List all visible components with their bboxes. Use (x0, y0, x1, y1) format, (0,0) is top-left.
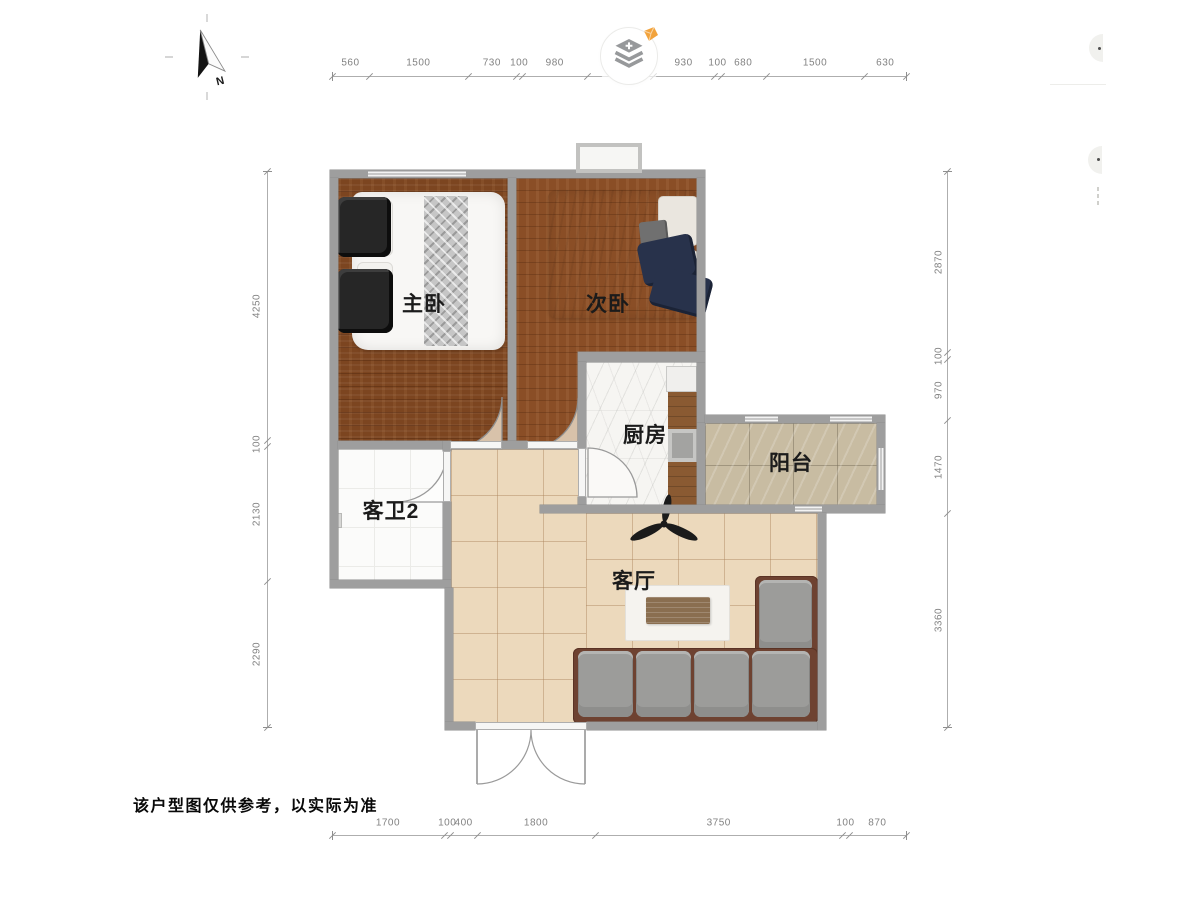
room-label-guest-bathroom: 客卫2 (363, 495, 420, 525)
window (745, 415, 778, 423)
dim-label: 3360 (934, 608, 945, 632)
dim-tick (332, 831, 333, 840)
wall (697, 178, 705, 423)
window (368, 170, 466, 178)
door-frame (450, 441, 502, 449)
dim-tick (943, 727, 952, 728)
dim-label: 100 (252, 435, 263, 453)
room-label-master-bedroom: 主卧 (402, 288, 446, 318)
room-label-kitchen: 厨房 (623, 419, 667, 449)
dim-label: 1700 (376, 818, 400, 829)
window (877, 448, 885, 490)
dim-label: 100 (836, 818, 854, 829)
edge-divider (1050, 84, 1106, 85)
dim-label: 3750 (707, 818, 731, 829)
wall (330, 580, 451, 588)
dim-label: 980 (546, 58, 564, 69)
dim-line (332, 835, 906, 836)
wall (540, 505, 885, 513)
dim-tick (906, 831, 907, 840)
wall (445, 588, 453, 730)
dimension-layer: 5601500730100980100093010068015006301700… (0, 0, 1200, 900)
dim-tick (332, 72, 333, 81)
dim-label: 4250 (252, 294, 263, 318)
wall (818, 513, 826, 730)
dim-label: 400 (455, 818, 473, 829)
dim-label: 2870 (934, 250, 945, 274)
dim-label: 100 (510, 58, 528, 69)
diamond-gem-icon (641, 26, 661, 46)
dim-label: 100 (934, 347, 945, 365)
wall (578, 352, 705, 362)
dim-label: 730 (483, 58, 501, 69)
wall (443, 502, 451, 588)
dim-line (267, 171, 268, 727)
window (830, 415, 872, 423)
wall (445, 722, 475, 730)
wall (502, 441, 527, 449)
door-frame (443, 451, 451, 502)
dim-label: 630 (876, 58, 894, 69)
dim-label: 2130 (252, 502, 263, 526)
wall (508, 178, 516, 441)
dim-tick (263, 171, 272, 172)
room-label-second-bedroom: 次卧 (586, 288, 630, 318)
dim-label: 1800 (524, 818, 548, 829)
flue-protrusion (576, 143, 642, 173)
wall (338, 441, 450, 449)
dim-label: 100 (708, 58, 726, 69)
wall (578, 362, 586, 448)
dim-label: 100 (438, 818, 456, 829)
door-frame (527, 441, 578, 449)
compass: N (157, 5, 257, 105)
dim-label: 1470 (934, 455, 945, 479)
dim-label: 1500 (406, 58, 430, 69)
dim-label: 970 (934, 381, 945, 399)
edge-text-mark (1097, 201, 1099, 205)
wall (587, 722, 826, 730)
balcony-slider-window (795, 505, 822, 513)
floorplan-canvas: 主卧 次卧 厨房 阳台 客卫2 客厅 该户型图仅供参考，以实际为准 560150… (0, 0, 1200, 900)
dim-line (947, 171, 948, 727)
wall (697, 423, 705, 513)
edge-button-dot-icon (1098, 47, 1101, 50)
wall (330, 178, 338, 588)
dim-label: 930 (674, 58, 692, 69)
dim-label: 870 (868, 818, 886, 829)
entry-door-frame (475, 722, 587, 730)
compass-north-label: N (215, 75, 226, 89)
door-frame (578, 448, 586, 497)
edge-text-mark (1097, 187, 1099, 191)
dim-label: 560 (341, 58, 359, 69)
dim-label: 2290 (252, 642, 263, 666)
dim-tick (263, 727, 272, 728)
edge-button-dot-icon (1097, 158, 1100, 161)
north-arrow-icon: N (187, 26, 229, 92)
disclaimer-text: 该户型图仅供参考，以实际为准 (133, 792, 378, 816)
dim-tick (943, 171, 952, 172)
room-label-living-room: 客厅 (612, 565, 656, 595)
dim-label: 680 (734, 58, 752, 69)
dim-tick (906, 72, 907, 81)
edge-text-mark (1097, 194, 1099, 198)
dim-label: 1500 (803, 58, 827, 69)
room-label-balcony: 阳台 (769, 447, 813, 477)
